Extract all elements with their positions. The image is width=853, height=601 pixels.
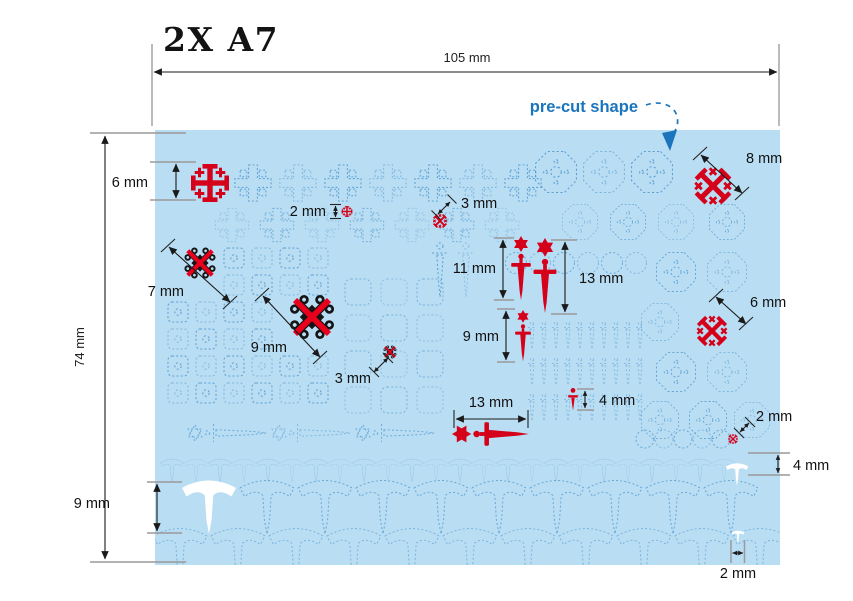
dim-label: 7 mm bbox=[148, 284, 184, 300]
dim-label: 4 mm bbox=[599, 393, 635, 409]
dim-label: 9 mm bbox=[463, 329, 499, 345]
page-title: 2X A7 bbox=[163, 20, 279, 59]
dim-label: 2 mm bbox=[756, 409, 792, 425]
dim-label: 9 mm bbox=[74, 496, 110, 512]
dim-label: 6 mm bbox=[112, 175, 148, 191]
dim-label: 3 mm bbox=[335, 371, 371, 387]
dim-label: 8 mm bbox=[746, 151, 782, 167]
dim-label-width: 105 mm bbox=[444, 50, 491, 65]
decal-sheet-diagram: 2X A7 bbox=[0, 0, 853, 601]
dim-label: 9 mm bbox=[251, 340, 287, 356]
dim-label: 3 mm bbox=[461, 196, 497, 212]
dim-label: 11 mm bbox=[453, 261, 496, 277]
dim-label: 4 mm bbox=[793, 458, 829, 474]
dim-label: 13 mm bbox=[469, 395, 513, 411]
dim-label: 6 mm bbox=[750, 295, 786, 311]
dim-label: 13 mm bbox=[579, 271, 623, 287]
dim-label-height: 74 mm bbox=[72, 327, 87, 367]
callout-label: pre-cut shape bbox=[530, 98, 638, 116]
dim-label: 2 mm bbox=[290, 204, 326, 220]
dim-label: 2 mm bbox=[720, 566, 756, 582]
